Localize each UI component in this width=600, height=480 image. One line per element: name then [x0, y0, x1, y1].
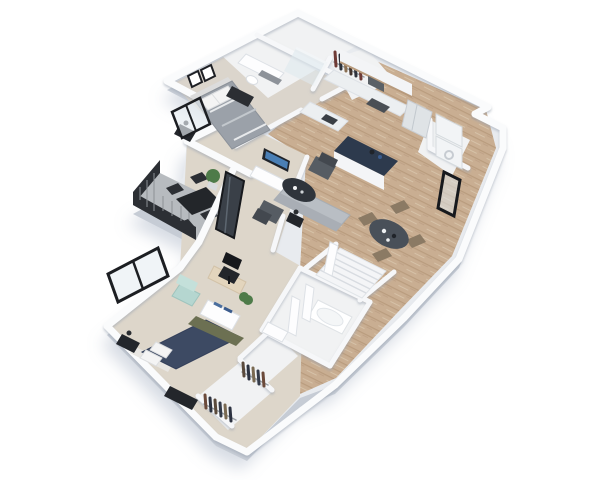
bedside-lamp: [127, 331, 132, 336]
plant: [239, 292, 249, 302]
floor-plan-render: [0, 0, 600, 480]
table-lamp: [294, 210, 299, 215]
floor-plan-page: [0, 0, 600, 480]
balcony-plant: [206, 169, 220, 183]
